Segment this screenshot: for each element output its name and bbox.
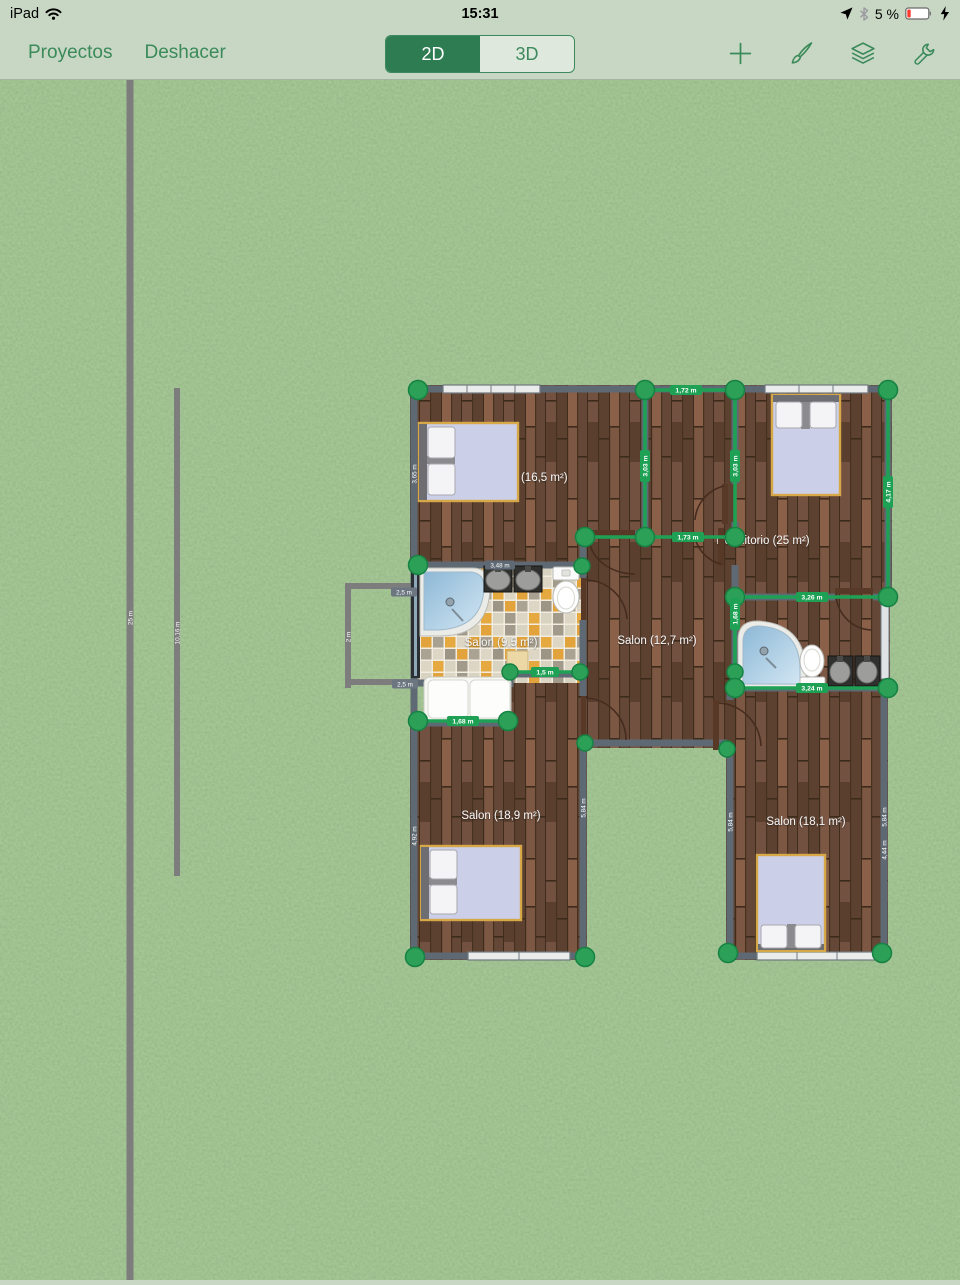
view-mode-switch[interactable]: 2D 3D — [385, 35, 575, 73]
drag-handle[interactable] — [576, 528, 595, 547]
drag-handle[interactable] — [502, 664, 518, 680]
drag-handle[interactable] — [879, 588, 898, 607]
bed[interactable] — [772, 395, 840, 495]
clock: 15:31 — [0, 6, 960, 22]
sink[interactable] — [514, 566, 542, 592]
measurement-label: 4,44 m — [881, 840, 888, 859]
projects-button[interactable]: Proyectos — [28, 42, 112, 64]
add-item-icon[interactable] — [727, 40, 754, 67]
toilet[interactable] — [553, 567, 579, 613]
floor-salon-189[interactable] — [410, 719, 587, 960]
drag-handle[interactable] — [406, 948, 425, 967]
room-label-salon-95: Salon (9,5 m²) — [465, 637, 538, 649]
measurement-label: 3,65 m — [411, 464, 418, 483]
measurement-label: 25 m — [127, 611, 134, 625]
measurement-label: 2,5 m — [396, 589, 412, 596]
measurement-label: 1,68 m — [452, 718, 473, 725]
undo-button[interactable]: Deshacer — [144, 42, 225, 64]
measurement-label: 2,5 m — [397, 681, 413, 688]
toolbar: Proyectos Deshacer 2D 3D — [0, 27, 960, 80]
measurement-label: 5,84 m — [580, 798, 587, 817]
toilet[interactable] — [800, 645, 825, 687]
measurement-label: 1,5 m — [536, 669, 553, 676]
drag-handle[interactable] — [727, 664, 743, 680]
measurement-label: 10,16 m — [174, 622, 181, 645]
sink[interactable] — [828, 656, 853, 686]
drag-handle[interactable] — [572, 664, 588, 680]
tab-3d[interactable]: 3D — [480, 36, 574, 72]
status-bar: iPad 15:31 5 % — [0, 0, 960, 27]
measurement-label: 1,68 m — [732, 603, 739, 624]
drag-handle[interactable] — [879, 381, 898, 400]
measurement-label: 1,73 m — [677, 534, 698, 541]
drag-handle[interactable] — [719, 741, 735, 757]
drag-handle[interactable] — [574, 558, 590, 574]
drag-handle[interactable] — [879, 679, 898, 698]
window[interactable] — [765, 385, 868, 393]
measurement-label: 3,26 m — [801, 594, 822, 601]
drag-handle[interactable] — [409, 556, 428, 575]
measurement-label: 3,48 m — [490, 562, 509, 569]
drag-handle[interactable] — [409, 381, 428, 400]
drag-handle[interactable] — [726, 528, 745, 547]
measurement-label: 5,84 m — [727, 812, 734, 831]
room-label-salon-127: Salon (12,7 m²) — [617, 635, 696, 647]
sink[interactable] — [484, 566, 512, 592]
window[interactable] — [443, 385, 540, 393]
drag-handle[interactable] — [719, 944, 738, 963]
room-label-salon-189: Salon (18,9 m²) — [461, 810, 540, 822]
bed[interactable] — [757, 855, 825, 951]
drag-handle[interactable] — [409, 712, 428, 731]
drag-handle[interactable] — [636, 381, 655, 400]
drag-handle[interactable] — [577, 735, 593, 751]
measurement-label: 4,17 m — [885, 481, 892, 502]
drag-handle[interactable] — [499, 712, 518, 731]
sofa[interactable] — [424, 677, 511, 721]
drag-handle[interactable] — [576, 948, 595, 967]
drag-handle[interactable] — [636, 528, 655, 547]
measurement-label: 5,84 m — [881, 807, 888, 826]
floor-plan-canvas[interactable]: Salon (16,5 m²) Dormitorio (25 m²) Salon… — [0, 80, 960, 1280]
drag-handle[interactable] — [873, 944, 892, 963]
tab-2d[interactable]: 2D — [386, 36, 480, 72]
wrench-icon[interactable] — [911, 40, 938, 67]
measurement-label: 1,72 m — [675, 387, 696, 394]
paint-brush-icon[interactable] — [788, 40, 815, 67]
bed[interactable] — [419, 423, 518, 501]
measurement-label: 3,24 m — [801, 685, 822, 692]
measurement-label: 3,03 m — [732, 455, 739, 476]
window[interactable] — [757, 952, 877, 960]
room-label-salon-181: Salon (18,1 m²) — [766, 816, 845, 828]
measurement-label: 3,03 m — [642, 455, 649, 476]
bed[interactable] — [421, 846, 521, 920]
layers-icon[interactable] — [849, 40, 877, 67]
drag-handle[interactable] — [726, 679, 745, 698]
measurement-label: 2 m — [345, 632, 352, 643]
window[interactable] — [881, 601, 889, 679]
sink[interactable] — [855, 656, 880, 686]
measurement-label: 4,92 m — [411, 826, 418, 845]
drag-handle[interactable] — [726, 381, 745, 400]
window[interactable] — [468, 952, 570, 960]
